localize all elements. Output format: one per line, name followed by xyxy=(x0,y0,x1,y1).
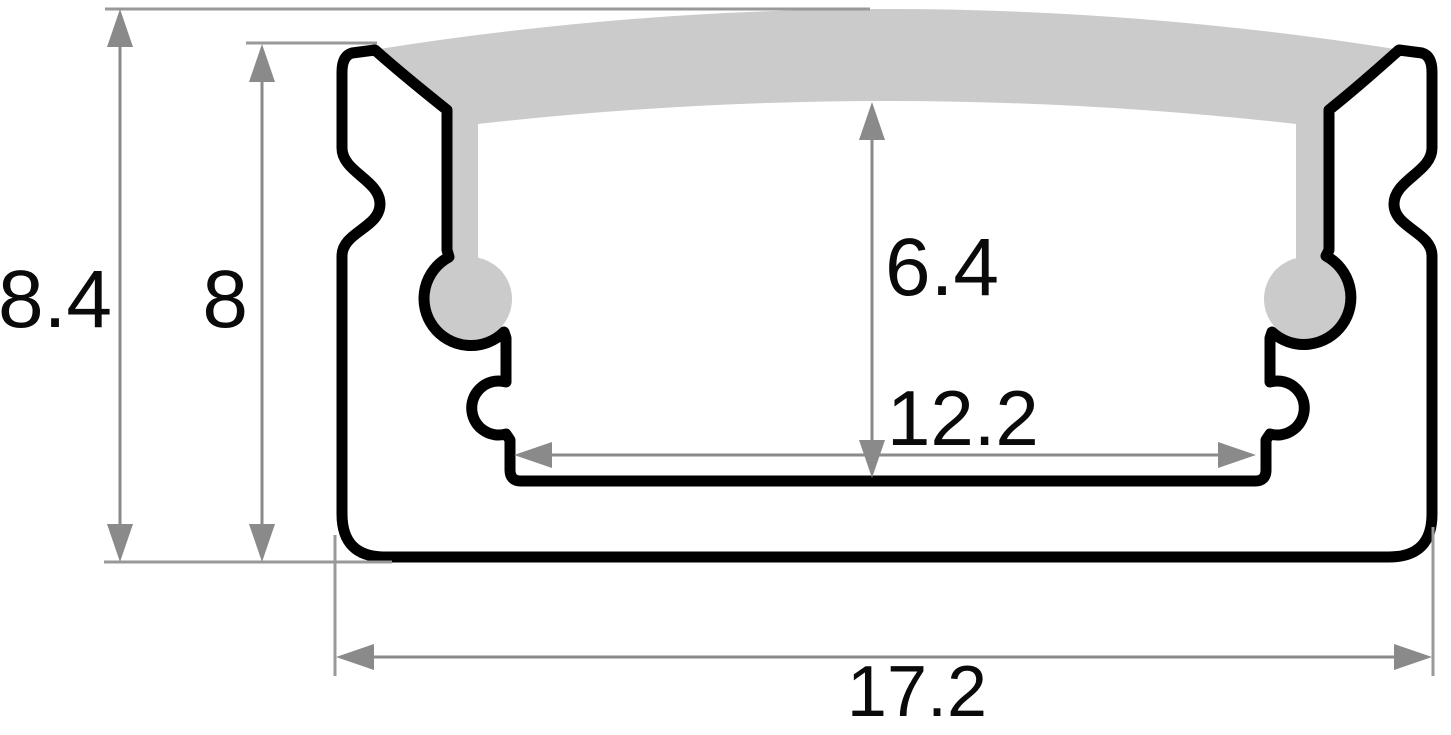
drawing-canvas: 8.4 8 6.4 12.2 17.2 xyxy=(0,0,1451,735)
arrow-down-icon xyxy=(859,440,885,478)
arrow-up-icon xyxy=(859,102,885,140)
arrow-down-icon xyxy=(107,524,133,562)
profile-drawing: 8.4 8 6.4 12.2 17.2 xyxy=(0,0,1451,735)
arrow-left-icon xyxy=(514,442,552,468)
body-height-label: 8 xyxy=(202,254,248,345)
inner-width-label: 12.2 xyxy=(887,374,1039,462)
arrow-down-icon xyxy=(249,524,275,562)
inner-height-label: 6.4 xyxy=(885,222,999,313)
arrow-right-icon xyxy=(1394,644,1432,670)
arrow-left-icon xyxy=(336,644,374,670)
arrow-up-icon xyxy=(107,9,133,47)
arrow-right-icon xyxy=(1218,442,1256,468)
overall-height-label: 8.4 xyxy=(0,254,112,345)
overall-width-label: 17.2 xyxy=(847,652,987,732)
arrow-up-icon xyxy=(249,44,275,82)
